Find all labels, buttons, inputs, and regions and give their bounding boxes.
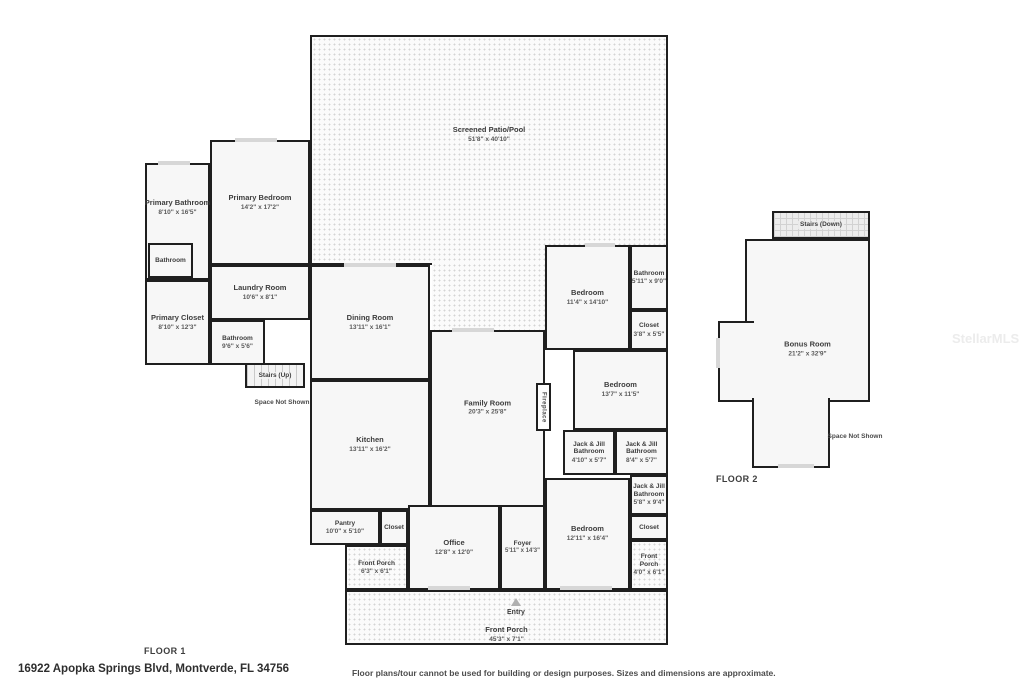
room-bedroom-2: Bedroom 11'4" x 14'10" [545, 245, 630, 350]
room-name-label: Laundry Room [234, 284, 287, 293]
window [158, 161, 190, 165]
room-foyer: Foyer 5'11" x 14'3" [500, 505, 545, 590]
room-jack-jill-bathroom-b: Jack & Jill Bathroom 8'4" x 5'7" [615, 430, 668, 475]
window [235, 138, 277, 142]
room-dims-label: 5'11" x 14'3" [505, 548, 540, 555]
room-dims-label: 10'6" x 8'1" [234, 294, 287, 301]
room-primary-bedroom: Primary Bedroom 14'2" x 17'2" [210, 140, 310, 265]
room-dims-label: 20'3" x 25'8" [464, 409, 511, 416]
room-closet-hall: Closet [380, 510, 408, 545]
room-pantry: Pantry 10'0" x 5'10" [310, 510, 380, 545]
room-dims-label: 4'0" x 6'1" [632, 569, 666, 576]
room-hall-bathroom: Bathroom 9'6" x 5'6" [210, 320, 265, 365]
room-front-porch-main: Entry Front Porch 45'3" x 7'1" [345, 590, 668, 645]
room-name-label: Primary Closet [151, 314, 204, 323]
room-dims-label: 5'11" x 9'0" [632, 278, 666, 285]
room-office: Office 12'8" x 12'0" [408, 505, 500, 590]
room-name-label: Primary Bathroom [145, 199, 210, 208]
room-kitchen: Kitchen 13'11" x 16'2" [310, 380, 430, 510]
room-bedroom-3: Bedroom 13'7" x 11'5" [573, 350, 668, 430]
room-bathroom-2: Bathroom 5'11" x 9'0" [630, 245, 668, 310]
room-name-label: Closet [639, 524, 659, 531]
room-name-label: Closet [634, 322, 665, 329]
mls-watermark: StellarMLS [952, 331, 1019, 346]
fireplace: Fireplace [536, 383, 551, 431]
room-dims-label: 8'10" x 12'3" [151, 324, 204, 331]
room-name-label: Screened Patio/Pool [453, 126, 526, 135]
room-screened-patio: Screened Patio/Pool 51'8" x 40'10" [310, 35, 668, 265]
window [452, 328, 494, 332]
room-family: Family Room 20'3" x 25'8" [430, 330, 545, 510]
room-name-label: Family Room [464, 399, 511, 408]
room-laundry: Laundry Room 10'6" x 8'1" [210, 265, 310, 320]
room-dims-label: 51'8" x 40'10" [453, 136, 526, 143]
room-dims-label: 21'2" x 32'9" [784, 350, 831, 357]
room-name-label: Stairs (Down) [800, 221, 842, 228]
room-front-porch-right: Front Porch 4'0" x 6'1" [630, 540, 668, 590]
room-dims-label: 8'4" x 5'7" [617, 457, 666, 464]
room-name-label: Primary Bedroom [229, 194, 292, 203]
room-dims-label: 5'8" x 9'4" [632, 499, 666, 506]
room-closet-2: Closet 3'8" x 5'5" [630, 310, 668, 350]
room-dims-label: 12'11" x 16'4" [567, 535, 608, 542]
room-dims-label: 10'0" x 5'10" [326, 528, 364, 535]
disclaimer-text: Floor plans/tour cannot be used for buil… [352, 668, 776, 678]
entry-label: Entry [507, 609, 525, 616]
window [428, 586, 470, 590]
room-name-label: Stairs (Up) [259, 372, 292, 379]
window [344, 263, 396, 267]
room-dims-label: 45'3" x 7'1" [485, 636, 528, 643]
room-dims-label: 3'8" x 5'5" [634, 331, 665, 338]
fireplace-label: Fireplace [541, 392, 547, 423]
room-name-label: Foyer [505, 540, 540, 547]
room-name-label: Jack & Jill Bathroom [565, 441, 613, 456]
floor-plan-canvas: Screened Patio/Pool 51'8" x 40'10" Prima… [0, 0, 1024, 682]
stairs-down: Stairs (Down) [772, 211, 870, 239]
room-primary-closet: Primary Closet 8'10" x 12'3" [145, 280, 210, 365]
room-dims-label: 4'10" x 5'7" [565, 457, 613, 464]
room-name-label: Office [435, 539, 473, 548]
room-dims-label: 14'2" x 17'2" [229, 204, 292, 211]
room-name-label: Jack & Jill Bathroom [617, 441, 666, 456]
space-not-shown-label-floor2: Space Not Shown [800, 433, 910, 440]
room-name-label: Bathroom [222, 335, 253, 342]
room-dining: Dining Room 13'11" x 16'1" [310, 265, 430, 380]
room-name-label: Front Porch [358, 560, 395, 567]
room-dims-label: 6'3" x 6'1" [358, 568, 395, 575]
room-front-porch-left: Front Porch 6'3" x 6'1" [345, 545, 408, 590]
space-not-shown-label: Space Not Shown [236, 399, 328, 406]
property-address: 16922 Apopka Springs Blvd, Montverde, FL… [18, 663, 289, 675]
room-name-label: Kitchen [349, 436, 390, 445]
room-dims-label: 9'6" x 5'6" [222, 343, 253, 350]
room-jack-jill-bathroom-c: Jack & Jill Bathroom 5'8" x 9'4" [630, 475, 668, 515]
window [778, 464, 814, 468]
room-name-label: Dining Room [347, 314, 394, 323]
room-closet-3: Closet [630, 515, 668, 540]
room-name-label: Bathroom [632, 270, 666, 277]
floor2-tag: FLOOR 2 [716, 474, 758, 484]
room-dims-label: 8'10" x 16'5" [145, 209, 210, 216]
room-name-label: Closet [384, 524, 404, 531]
room-bonus: Bonus Room 21'2" x 32'9" [745, 239, 870, 402]
room-name-label: Bedroom [567, 525, 608, 534]
window [585, 243, 615, 247]
room-dims-label: 13'7" x 11'5" [602, 391, 640, 398]
floor1-tag: FLOOR 1 [144, 646, 186, 656]
room-dims-label: 12'8" x 12'0" [435, 549, 473, 556]
room-name-label: Pantry [326, 520, 364, 527]
entry-arrow-icon [511, 598, 521, 606]
room-name-label: Front Porch [632, 553, 666, 568]
room-name-label: Bedroom [602, 381, 640, 390]
stairs-up: Stairs (Up) [245, 363, 305, 388]
window [560, 586, 612, 590]
room-name-label: Jack & Jill Bathroom [632, 483, 666, 498]
room-jack-jill-bathroom-a: Jack & Jill Bathroom 4'10" x 5'7" [563, 430, 615, 475]
patio-opening [432, 263, 545, 330]
room-dims-label: 13'11" x 16'2" [349, 446, 390, 453]
room-name-label: Bathroom [155, 257, 186, 264]
window [716, 338, 720, 368]
room-name-label: Bonus Room [784, 341, 831, 350]
room-name-label: Front Porch [485, 626, 528, 635]
room-dims-label: 13'11" x 16'1" [347, 324, 394, 331]
room-dims-label: 11'4" x 14'10" [567, 299, 608, 306]
room-name-label: Bedroom [567, 289, 608, 298]
room-bedroom-4: Bedroom 12'11" x 16'4" [545, 478, 630, 590]
bonus-room-left-extension [718, 321, 754, 402]
room-toilet-bathroom: Bathroom [148, 243, 193, 278]
